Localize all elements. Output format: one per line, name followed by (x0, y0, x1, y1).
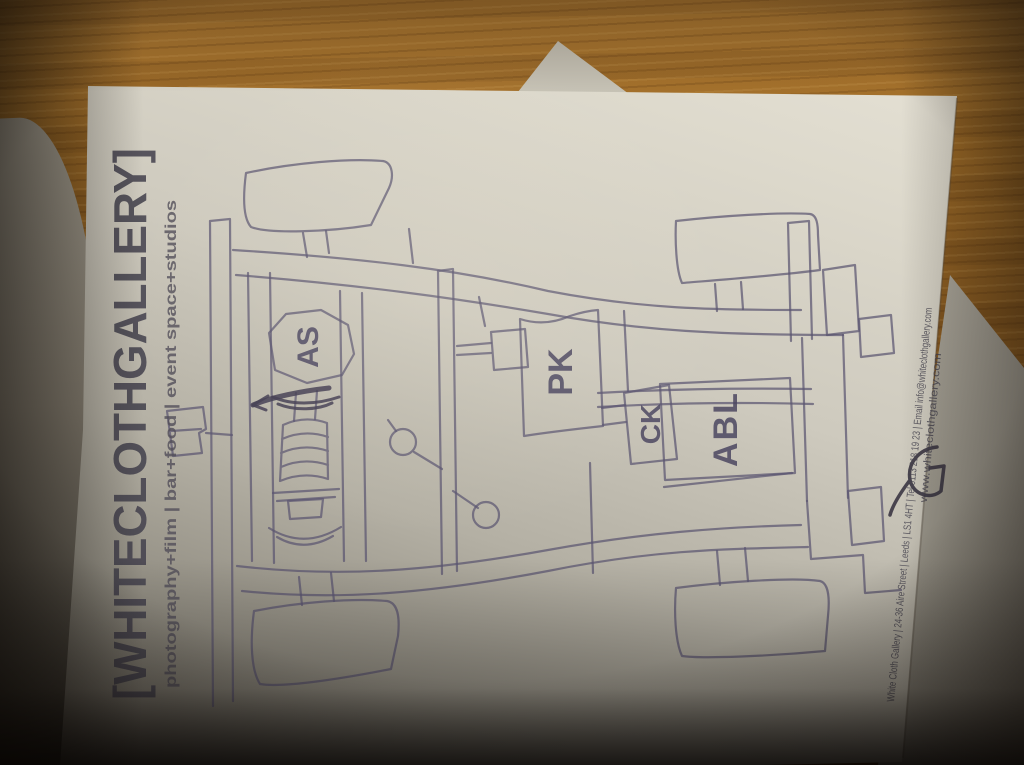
wheel-rear-right (675, 580, 829, 658)
wheel-front-left-stems (303, 231, 329, 257)
crossbar-1 (248, 273, 274, 563)
crossbar-4 (624, 311, 628, 391)
wheel-rear-right-stems (717, 548, 748, 585)
rear-lower-arm (848, 487, 884, 545)
pk-ck-link (602, 405, 626, 425)
photo-of-sketch-on-table: [WHITECLOTHGALLERY] photography+film | b… (0, 0, 1024, 765)
wheel-front-right (252, 600, 399, 685)
gallery-logo-text: [WHITECLOTHGALLERY] (104, 148, 156, 700)
chassis-rail-bottom-1 (237, 525, 801, 572)
gallery-tagline-text: photography+film | bar+food | event spac… (163, 200, 180, 688)
front-post (210, 219, 233, 706)
rear-upper-arm (823, 265, 859, 335)
crossbar-3 (590, 463, 593, 573)
washer-dish (273, 397, 339, 409)
wheel-front-left (244, 160, 392, 231)
pk-feed-lines (457, 343, 491, 355)
chassis-rail-top-2 (236, 275, 843, 335)
spring-coil (280, 419, 328, 481)
bolt-shaft (294, 391, 317, 421)
sketch-label-as: AS (292, 326, 325, 368)
sketch-label-ck: CK (635, 404, 666, 444)
sketch-label-abl: ABL (707, 391, 745, 467)
pivot-circle (390, 429, 416, 455)
tick-marks (409, 229, 485, 326)
crossbar-2 (340, 291, 366, 561)
crossbar-mid (438, 269, 457, 574)
pencil-sketch-layer: [WHITECLOTHGALLERY] photography+film | b… (0, 0, 1024, 765)
rear-column (802, 335, 848, 501)
sketch-label-pk: PK (542, 348, 580, 396)
rear-steps (807, 501, 901, 593)
bracket-curve (269, 527, 341, 545)
rear-right-arm (859, 315, 894, 357)
pulley-circle (473, 502, 499, 528)
wheel-rear-left (676, 213, 820, 283)
wheel-rear-left-stems (715, 282, 743, 311)
chassis-sketch (167, 160, 901, 706)
rear-thin-bar (788, 221, 812, 341)
coil-base-block (288, 499, 323, 519)
